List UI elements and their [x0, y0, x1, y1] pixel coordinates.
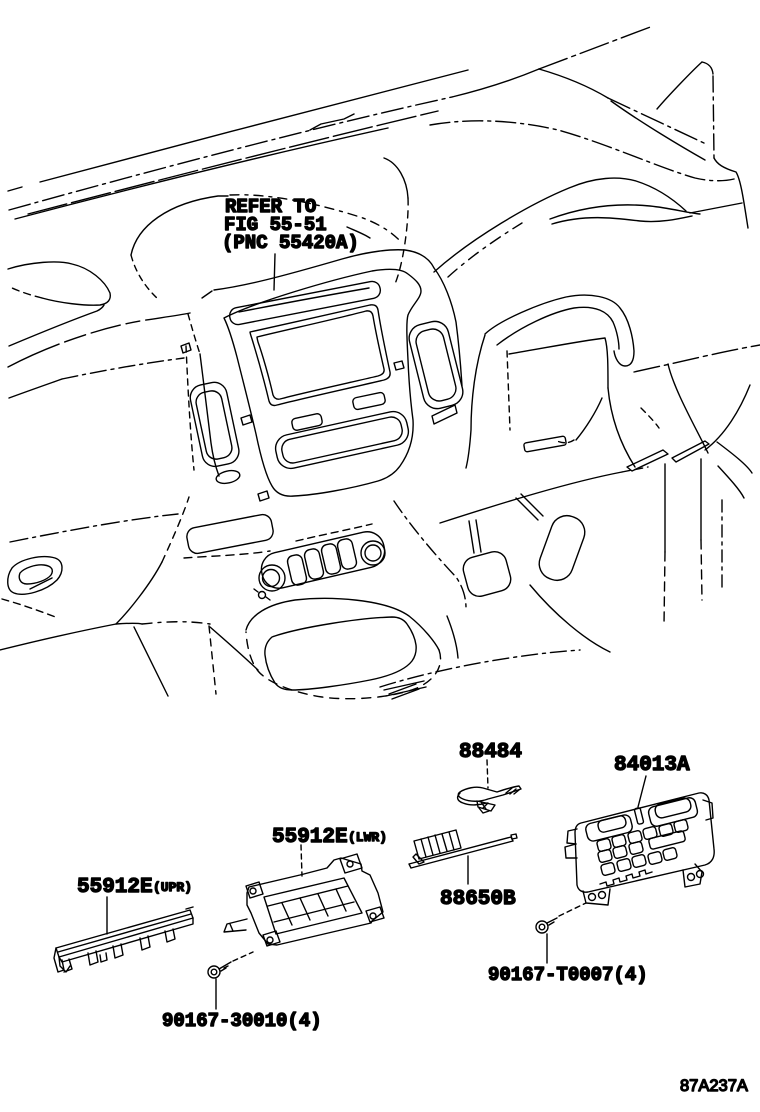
- svg-text:88650B: 88650B: [440, 888, 516, 911]
- svg-text:(LWR): (LWR): [348, 830, 387, 845]
- svg-text:(UPR): (UPR): [153, 880, 192, 895]
- svg-text:55912E: 55912E: [77, 876, 153, 899]
- svg-text:(PNC 55420A): (PNC 55420A): [222, 232, 359, 254]
- svg-text:87A237A: 87A237A: [680, 1077, 748, 1095]
- svg-text:84013A: 84013A: [614, 754, 690, 777]
- svg-text:88484: 88484: [459, 741, 522, 764]
- svg-text:90167-T0007(4): 90167-T0007(4): [488, 964, 648, 986]
- svg-text:55912E: 55912E: [272, 826, 348, 849]
- svg-text:90167-30010(4): 90167-30010(4): [162, 1010, 322, 1032]
